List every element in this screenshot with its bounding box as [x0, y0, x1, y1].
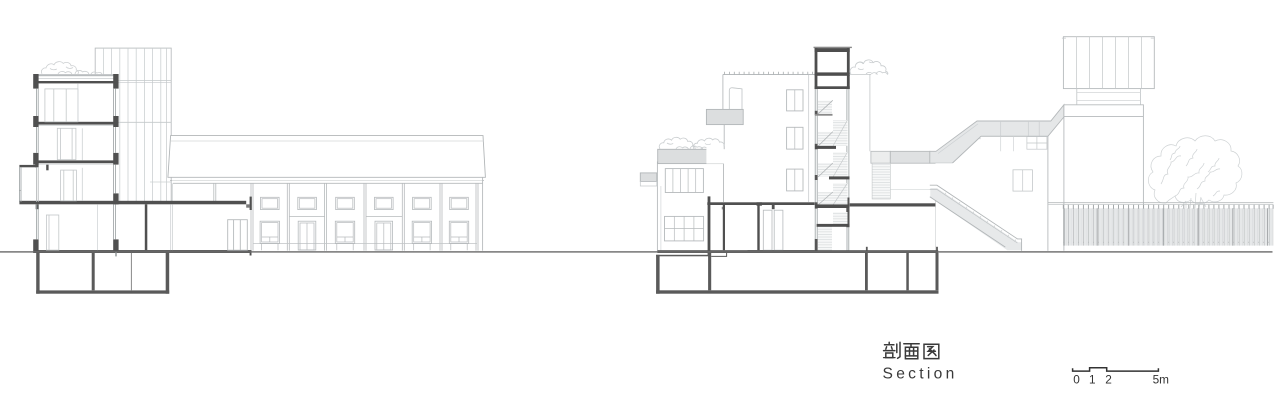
svg-text:2: 2 — [1105, 373, 1112, 387]
svg-text:5m: 5m — [1153, 373, 1170, 387]
svg-text:Section: Section — [883, 365, 958, 382]
svg-text:0: 0 — [1073, 373, 1080, 387]
svg-text:1: 1 — [1089, 373, 1096, 387]
